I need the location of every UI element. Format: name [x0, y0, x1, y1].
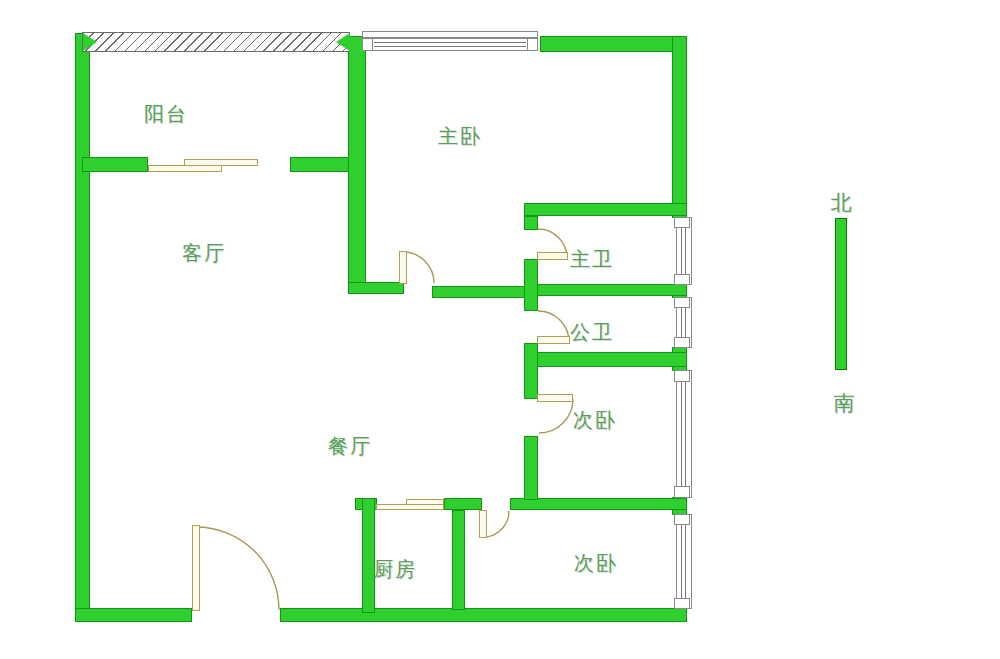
compass-south-label: 南	[834, 389, 855, 417]
bath-left-wall-stub1	[524, 216, 538, 230]
bath-left-wall-stub2	[524, 259, 538, 311]
shared-bathroom-door-panel	[537, 336, 570, 344]
window-cap	[674, 598, 690, 609]
kitchen-top-block	[444, 498, 482, 510]
compass-bar	[835, 218, 847, 370]
window-glass	[681, 382, 686, 486]
window-glass	[681, 525, 686, 598]
room-label-living-room: 客厅	[182, 240, 226, 267]
door-swing-arcs	[0, 0, 1000, 659]
window-cap	[527, 38, 538, 51]
master-bathroom-top-wall	[524, 203, 687, 216]
room-label-balcony: 阳台	[144, 101, 188, 128]
window-cap	[362, 38, 373, 51]
balcony-sliding-door-panel	[184, 159, 258, 166]
room-label-bedroom-middle: 次卧	[573, 407, 617, 434]
master-bedroom-left-wall	[348, 36, 366, 294]
balcony-window	[82, 32, 350, 52]
room-label-dining-room: 餐厅	[328, 433, 372, 460]
window-cap	[674, 370, 690, 382]
window-glass	[681, 308, 686, 337]
window-cap	[674, 486, 690, 498]
bedroom-middle-door-arc	[539, 399, 573, 433]
room-label-master-bedroom: 主卧	[438, 123, 482, 150]
balcony-sliding-door-panel	[148, 165, 222, 172]
window-cap	[674, 337, 690, 348]
master-bedroom-window-sill	[362, 31, 538, 38]
bath-left-wall-stub4	[524, 436, 538, 500]
balcony-wall-left	[82, 157, 148, 172]
master-bathroom-door-panel	[537, 252, 568, 260]
bedroom-bottom-door-panel	[479, 510, 487, 538]
window-cap	[674, 514, 690, 525]
bathroom-divider-wall	[524, 284, 687, 296]
window-glass	[681, 228, 686, 274]
room-label-bedroom-bottom: 次卧	[574, 550, 618, 577]
outer-wall-left	[75, 33, 90, 622]
master-bedroom-window-glass	[374, 42, 526, 47]
master-bedroom-door-arc	[403, 252, 434, 283]
outer-wall-bottom-left	[75, 608, 192, 622]
compass-north-label: 北	[831, 189, 852, 217]
outer-wall-top-right	[540, 36, 687, 52]
kitchen-sliding-door-panel	[406, 499, 444, 505]
room-label-shared-bathroom: 公卫	[570, 319, 614, 346]
window-cap	[674, 274, 690, 285]
window-cap	[674, 297, 690, 308]
master-bedroom-bottom-wall-left	[348, 282, 404, 294]
balcony-wall-right	[290, 157, 350, 172]
shared-bathroom-bottom-wall	[524, 352, 687, 367]
floor-plan-canvas: 阳台 主卧 客厅 主卫 公卫 次卧 餐厅 厨房 次卧 北 南	[0, 0, 1000, 659]
kitchen-right-wall	[452, 510, 465, 610]
outer-wall-bottom-right	[280, 608, 687, 622]
bedroom-middle-door-panel	[537, 394, 573, 402]
room-label-kitchen: 厨房	[373, 556, 417, 583]
entrance-door-arc	[196, 527, 279, 610]
outer-wall-right-seg1	[672, 36, 687, 218]
bath-left-wall-stub3	[524, 343, 538, 399]
master-bedroom-door-panel	[399, 251, 407, 284]
entrance-door-panel	[192, 525, 200, 611]
master-bedroom-bottom-wall-right	[432, 286, 526, 298]
room-label-master-bathroom: 主卫	[570, 246, 614, 273]
window-cap	[674, 217, 690, 228]
